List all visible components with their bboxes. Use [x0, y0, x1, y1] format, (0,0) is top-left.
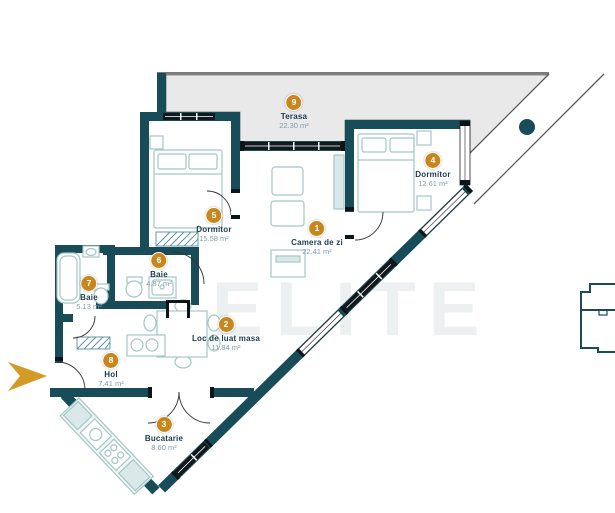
- room-area: 22.30 m²: [279, 122, 309, 131]
- wall-terrace-left-stub: [157, 73, 166, 115]
- room-label-bath7: 7 Baie 5.13 m²: [76, 275, 101, 312]
- room-area: 7.41 m²: [98, 380, 123, 389]
- terrace-column-dot: [519, 119, 535, 135]
- wall-bath6-bottom: [96, 301, 168, 309]
- room-label-kitchen: 3 Bucatarie 8.60 m²: [145, 416, 183, 453]
- room-name: Hol: [98, 370, 123, 379]
- room-label-terrace: 9 Terasa 22.30 m²: [279, 94, 309, 131]
- room-area: 5.13 m²: [76, 303, 101, 312]
- room-name: Terasa: [279, 112, 309, 121]
- bath6-door-arc: [172, 252, 204, 284]
- wall-kitchen-top-left: [100, 388, 148, 397]
- room-name: Dormitor: [196, 225, 231, 234]
- room-number-badge: 6: [151, 252, 168, 269]
- room-label-bath6: 6 Baie 4.87 m²: [146, 252, 171, 289]
- room-number-badge: 7: [81, 275, 98, 292]
- room-name: Loc de luat masa: [192, 334, 260, 343]
- room-name: Dormitor: [415, 170, 450, 179]
- room-area: 15.58 m²: [196, 235, 231, 244]
- room-area: 11.84 m²: [192, 344, 260, 353]
- furniture: [57, 131, 431, 494]
- bench-hall: [127, 335, 165, 356]
- room-label-bedroom4: 4 Dormitor 12.61 m²: [415, 152, 450, 189]
- room-area: 12.61 m²: [415, 180, 450, 189]
- room-number-badge: 5: [205, 207, 222, 224]
- wall-bath-divider: [107, 253, 115, 309]
- room-area: 8.60 m²: [145, 444, 183, 453]
- floorplan-page: ELITE: [0, 0, 615, 513]
- room-area: 22.41 m²: [291, 248, 343, 257]
- room-number-badge: 9: [285, 94, 302, 111]
- wall-bedroom5-left: [140, 112, 149, 255]
- entrance-arrow-icon: [8, 362, 47, 391]
- sink-bath7: [83, 246, 99, 257]
- wall-kitchen-top-right: [214, 388, 254, 397]
- sofa-living: [271, 167, 304, 226]
- room-name: Baie: [76, 293, 101, 302]
- room-number-badge: 3: [155, 416, 172, 433]
- bedroom4-right-window: [460, 121, 470, 185]
- room-number-badge: 4: [424, 152, 441, 169]
- terrace-parapet-top: [157, 72, 549, 75]
- building-outline-icon: [581, 284, 615, 352]
- room-number-badge: 8: [103, 352, 120, 369]
- radiator-bedroom5: [156, 232, 198, 246]
- radiator-hall: [77, 337, 110, 349]
- room-label-dining: 2 Loc de luat masa 11.84 m²: [192, 316, 260, 353]
- wall-bedroom4-top: [345, 120, 470, 129]
- room-name: Bucatarie: [145, 434, 183, 443]
- room-name: Baie: [146, 270, 171, 279]
- kitchen-door-arc-right: [179, 392, 210, 423]
- wall-hall-bottom: [50, 388, 102, 397]
- room-number-badge: 1: [308, 220, 325, 237]
- room-number-badge: 2: [218, 316, 235, 333]
- shelf-living: [334, 155, 344, 209]
- room-label-hall: 8 Hol 7.41 m²: [98, 352, 123, 389]
- room-area: 4.87 m²: [146, 280, 171, 289]
- wall-bath7-bottom: [55, 314, 73, 322]
- room-label-bedroom5: 5 Dormitor 15.58 m²: [196, 207, 231, 244]
- room-name: Camera de zi: [291, 238, 343, 247]
- wall-bath6-right: [191, 255, 199, 305]
- room-label-living: 1 Camera de zi 22.41 m²: [291, 220, 343, 257]
- wall-bedroom4-left: [345, 129, 354, 212]
- bath7-door-arc: [73, 316, 95, 338]
- sink-bath6: [126, 277, 142, 297]
- bedroom4-door-arc: [355, 212, 383, 240]
- kitchen-counter: [60, 398, 153, 494]
- entrance-door-arc: [57, 362, 85, 390]
